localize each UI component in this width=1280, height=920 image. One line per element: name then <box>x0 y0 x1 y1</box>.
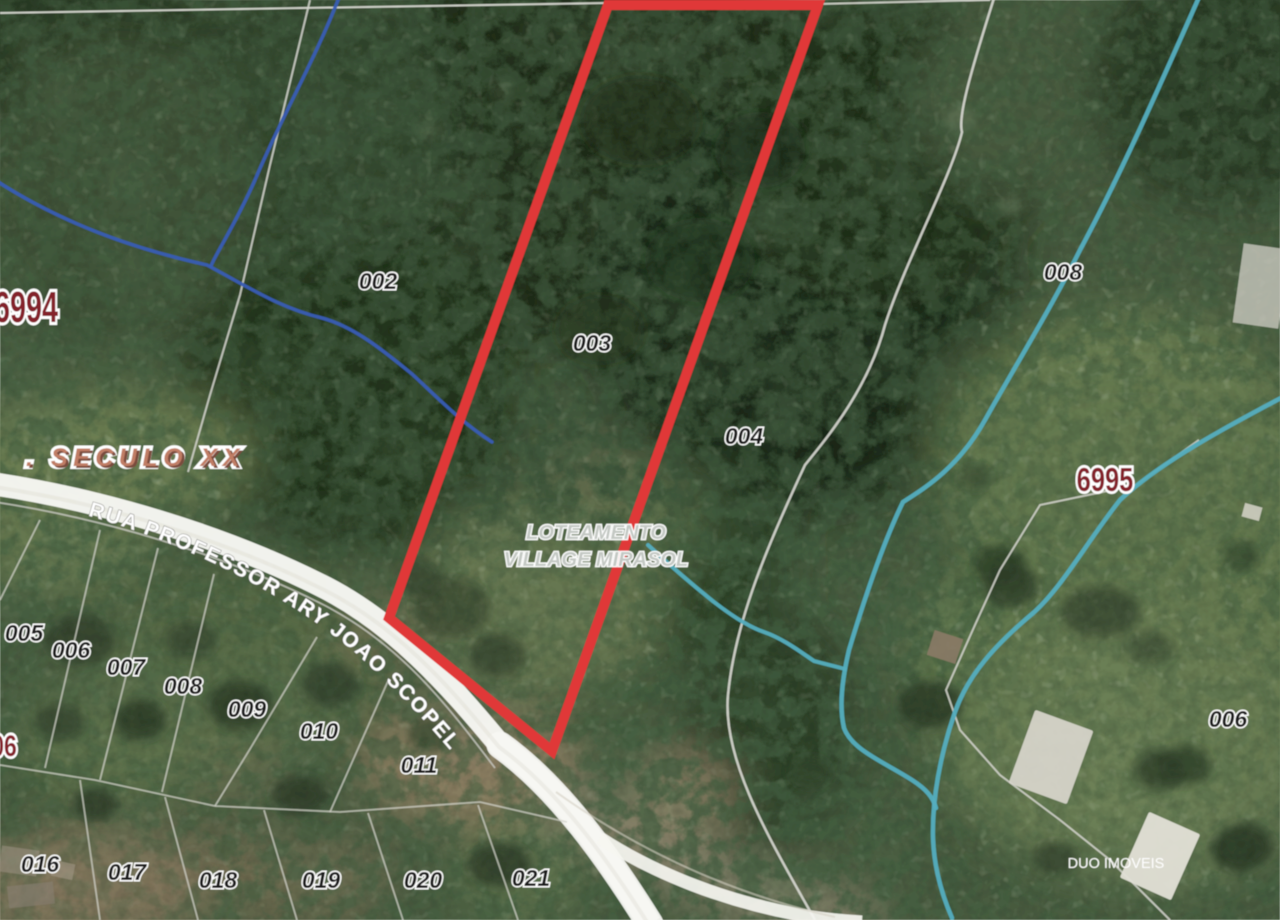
svg-text:003: 003 <box>573 330 612 356</box>
svg-text:020: 020 <box>404 867 443 893</box>
svg-text:010: 010 <box>300 718 339 744</box>
svg-text:019: 019 <box>302 867 341 893</box>
svg-text:021: 021 <box>512 865 550 891</box>
svg-text:006: 006 <box>1209 706 1248 732</box>
svg-text:002: 002 <box>359 268 398 294</box>
svg-text:018: 018 <box>199 867 238 893</box>
svg-text:008: 008 <box>1044 259 1083 285</box>
svg-text:009: 009 <box>228 696 267 722</box>
svg-text:DUO IMOVEIS: DUO IMOVEIS <box>1068 856 1165 872</box>
svg-text:. SECULO XX: . SECULO XX <box>26 444 245 472</box>
svg-text:005: 005 <box>5 620 45 646</box>
svg-text:006: 006 <box>52 637 91 663</box>
svg-text:011: 011 <box>401 752 438 778</box>
svg-text:007: 007 <box>107 654 147 680</box>
svg-text:004: 004 <box>725 423 764 449</box>
svg-text:6995: 6995 <box>1077 462 1134 499</box>
svg-text:008: 008 <box>164 673 203 699</box>
svg-text:6994: 6994 <box>0 283 58 331</box>
svg-text:06: 06 <box>0 729 17 763</box>
svg-text:VILLAGE MIRASOL: VILLAGE MIRASOL <box>504 549 688 571</box>
svg-text:LOTEAMENTO: LOTEAMENTO <box>526 522 666 544</box>
svg-text:016: 016 <box>21 851 60 877</box>
svg-text:017: 017 <box>108 859 148 885</box>
